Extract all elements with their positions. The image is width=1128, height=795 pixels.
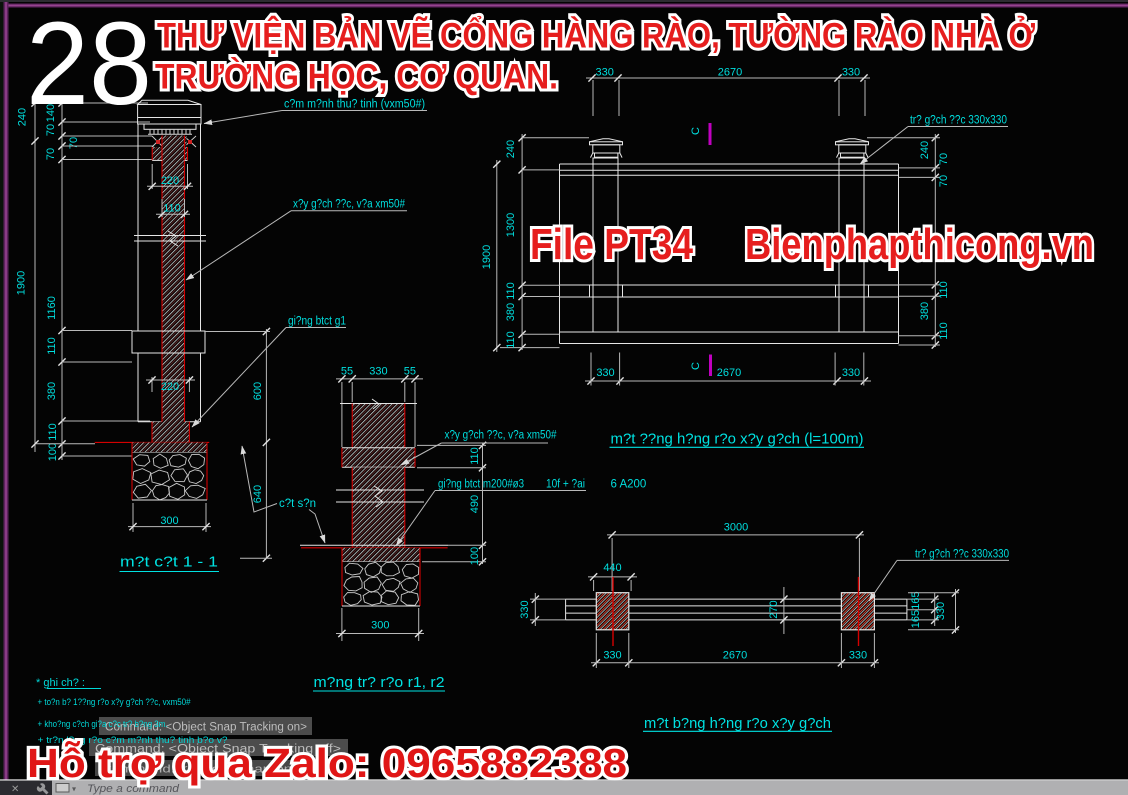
svg-text:165: 165 bbox=[910, 610, 922, 628]
svg-text:300: 300 bbox=[371, 620, 389, 632]
svg-text:tr? g?ch ??c 330x330: tr? g?ch ??c 330x330 bbox=[910, 115, 1007, 127]
svg-text:1900: 1900 bbox=[481, 245, 493, 269]
svg-text:70: 70 bbox=[45, 148, 57, 160]
svg-text:Bienphapthicong.vn: Bienphapthicong.vn bbox=[745, 220, 1094, 269]
svg-text:tr? g?ch ??c 330x330: tr? g?ch ??c 330x330 bbox=[915, 549, 1009, 561]
svg-text:55: 55 bbox=[404, 366, 416, 378]
svg-text:330: 330 bbox=[369, 366, 387, 378]
svg-text:110: 110 bbox=[163, 203, 181, 215]
svg-text:+ kho?ng c?ch gi?a c?c tr? b?n: + kho?ng c?ch gi?a c?c tr? b?ng 3m. bbox=[38, 719, 168, 729]
svg-text:THƯ VIỆN BẢN VẼ CỔNG HÀNG RÀO,: THƯ VIỆN BẢN VẼ CỔNG HÀNG RÀO, TƯỜNG RÀO… bbox=[157, 16, 1035, 56]
svg-text:10f + ?ai: 10f + ?ai bbox=[546, 479, 585, 491]
svg-text:2670: 2670 bbox=[723, 649, 747, 661]
svg-text:330: 330 bbox=[842, 367, 860, 379]
svg-text:330: 330 bbox=[842, 67, 860, 79]
svg-text:C: C bbox=[690, 127, 702, 135]
svg-text:70: 70 bbox=[938, 153, 950, 165]
svg-text:TRƯỜNG HỌC, CƠ QUAN.: TRƯỜNG HỌC, CƠ QUAN. bbox=[155, 57, 558, 97]
svg-text:220: 220 bbox=[161, 175, 179, 187]
svg-text:165: 165 bbox=[910, 591, 922, 609]
svg-text:110: 110 bbox=[469, 447, 481, 465]
svg-text:240: 240 bbox=[919, 141, 931, 159]
svg-text:380: 380 bbox=[505, 303, 517, 321]
svg-text:330: 330 bbox=[849, 649, 867, 661]
svg-text:1900: 1900 bbox=[16, 271, 28, 295]
svg-text:m?t ??ng h?ng r?o x?y g?ch (l=: m?t ??ng h?ng r?o x?y g?ch (l=100m) bbox=[611, 431, 864, 448]
svg-text:640: 640 bbox=[252, 485, 264, 503]
svg-text:110: 110 bbox=[938, 281, 950, 299]
svg-text:✕: ✕ bbox=[11, 784, 19, 795]
svg-text:440: 440 bbox=[603, 562, 621, 574]
svg-text:270: 270 bbox=[768, 600, 780, 618]
svg-text:* ghi ch? :: * ghi ch? : bbox=[36, 677, 85, 689]
svg-text:330: 330 bbox=[603, 649, 621, 661]
svg-text:1160: 1160 bbox=[46, 296, 58, 320]
svg-text:70: 70 bbox=[68, 137, 80, 149]
svg-text:6 A200: 6 A200 bbox=[611, 479, 647, 491]
svg-text:110: 110 bbox=[938, 322, 950, 340]
svg-text:330: 330 bbox=[519, 600, 531, 618]
svg-text:+ to?n b? 1??ng r?o x?y g?ch ?: + to?n b? 1??ng r?o x?y g?ch ??c, vxm50# bbox=[38, 697, 191, 707]
svg-text:110: 110 bbox=[46, 337, 58, 355]
svg-text:C: C bbox=[690, 362, 702, 370]
svg-text:380: 380 bbox=[46, 382, 58, 400]
svg-text:100: 100 bbox=[47, 443, 59, 461]
svg-text:m?t c?t 1 - 1: m?t c?t 1 - 1 bbox=[120, 554, 218, 571]
svg-text:c?t s?n: c?t s?n bbox=[279, 498, 316, 510]
svg-text:gi?ng btct g1: gi?ng btct g1 bbox=[288, 316, 346, 328]
svg-text:240: 240 bbox=[505, 140, 517, 158]
svg-text:2670: 2670 bbox=[717, 367, 741, 379]
svg-text:110: 110 bbox=[47, 423, 59, 441]
svg-text:gi?ng btct m200#ø3: gi?ng btct m200#ø3 bbox=[438, 479, 524, 491]
svg-text:600: 600 bbox=[252, 382, 264, 400]
svg-text:330: 330 bbox=[596, 367, 614, 379]
svg-text:110: 110 bbox=[505, 331, 517, 349]
svg-text:220: 220 bbox=[161, 381, 179, 393]
svg-text:Hỗ trợ qua Zalo: 0965882388: Hỗ trợ qua Zalo: 0965882388 bbox=[27, 740, 627, 786]
svg-text:490: 490 bbox=[469, 495, 481, 513]
svg-text:3000: 3000 bbox=[724, 522, 748, 534]
svg-text:x?y g?ch ??c, v?a xm50#: x?y g?ch ??c, v?a xm50# bbox=[445, 430, 558, 442]
svg-text:c?m m?nh thu? tinh (vxm50#): c?m m?nh thu? tinh (vxm50#) bbox=[284, 99, 425, 111]
svg-text:110: 110 bbox=[505, 282, 517, 300]
svg-text:x?y g?ch ??c, v?a xm50#: x?y g?ch ??c, v?a xm50# bbox=[293, 199, 406, 211]
svg-text:2670: 2670 bbox=[718, 67, 742, 79]
svg-text:File PT34: File PT34 bbox=[530, 220, 693, 269]
svg-text:55: 55 bbox=[341, 366, 353, 378]
svg-text:28: 28 bbox=[26, 0, 152, 130]
svg-text:330: 330 bbox=[935, 602, 947, 620]
svg-text:m?t b?ng h?ng r?o x?y g?ch: m?t b?ng h?ng r?o x?y g?ch bbox=[644, 715, 831, 732]
svg-text:m?ng tr? r?o r1, r2: m?ng tr? r?o r1, r2 bbox=[314, 674, 445, 691]
svg-text:300: 300 bbox=[160, 515, 178, 527]
svg-text:70: 70 bbox=[938, 175, 950, 187]
svg-text:1300: 1300 bbox=[505, 213, 517, 237]
svg-text:380: 380 bbox=[919, 302, 931, 320]
svg-text:100: 100 bbox=[469, 547, 481, 565]
svg-text:330: 330 bbox=[596, 67, 614, 79]
